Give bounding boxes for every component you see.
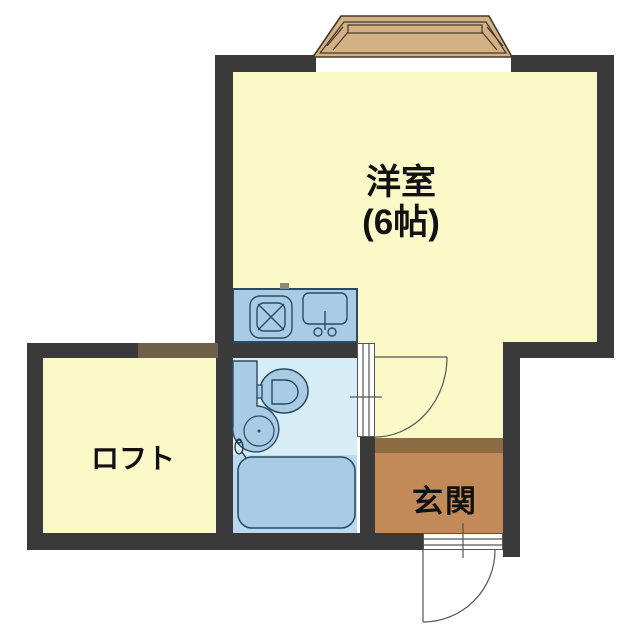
- wall-genkan-right: [503, 342, 520, 557]
- bay-window-icon: [313, 16, 512, 57]
- wall-right: [597, 55, 614, 358]
- wall-bottom: [27, 533, 423, 550]
- hallway-floor: [375, 343, 503, 438]
- loft-label: ロフト: [63, 437, 203, 477]
- wall-left: [215, 55, 233, 358]
- wall-bath-left: [216, 358, 233, 533]
- bathroom-floor: [233, 358, 357, 455]
- bath-door-frame: [357, 343, 375, 437]
- wall-genkan-left: [360, 437, 375, 533]
- kitchen-counter: [232, 288, 358, 343]
- main-room-name: 洋室: [321, 163, 481, 203]
- wall-loft-left: [27, 343, 43, 549]
- entry-door-frame: [423, 533, 503, 550]
- floor-plan: 洋室 (6帖) ロフト 玄関: [0, 0, 640, 640]
- main-room-label: 洋室 (6帖): [321, 163, 481, 243]
- entrance-label: 玄関: [390, 476, 500, 521]
- bathtub-area-floor: [233, 455, 357, 533]
- genkan-step: [375, 438, 503, 453]
- wall-brown-segment: [138, 343, 218, 358]
- main-room-size: (6帖): [321, 203, 481, 243]
